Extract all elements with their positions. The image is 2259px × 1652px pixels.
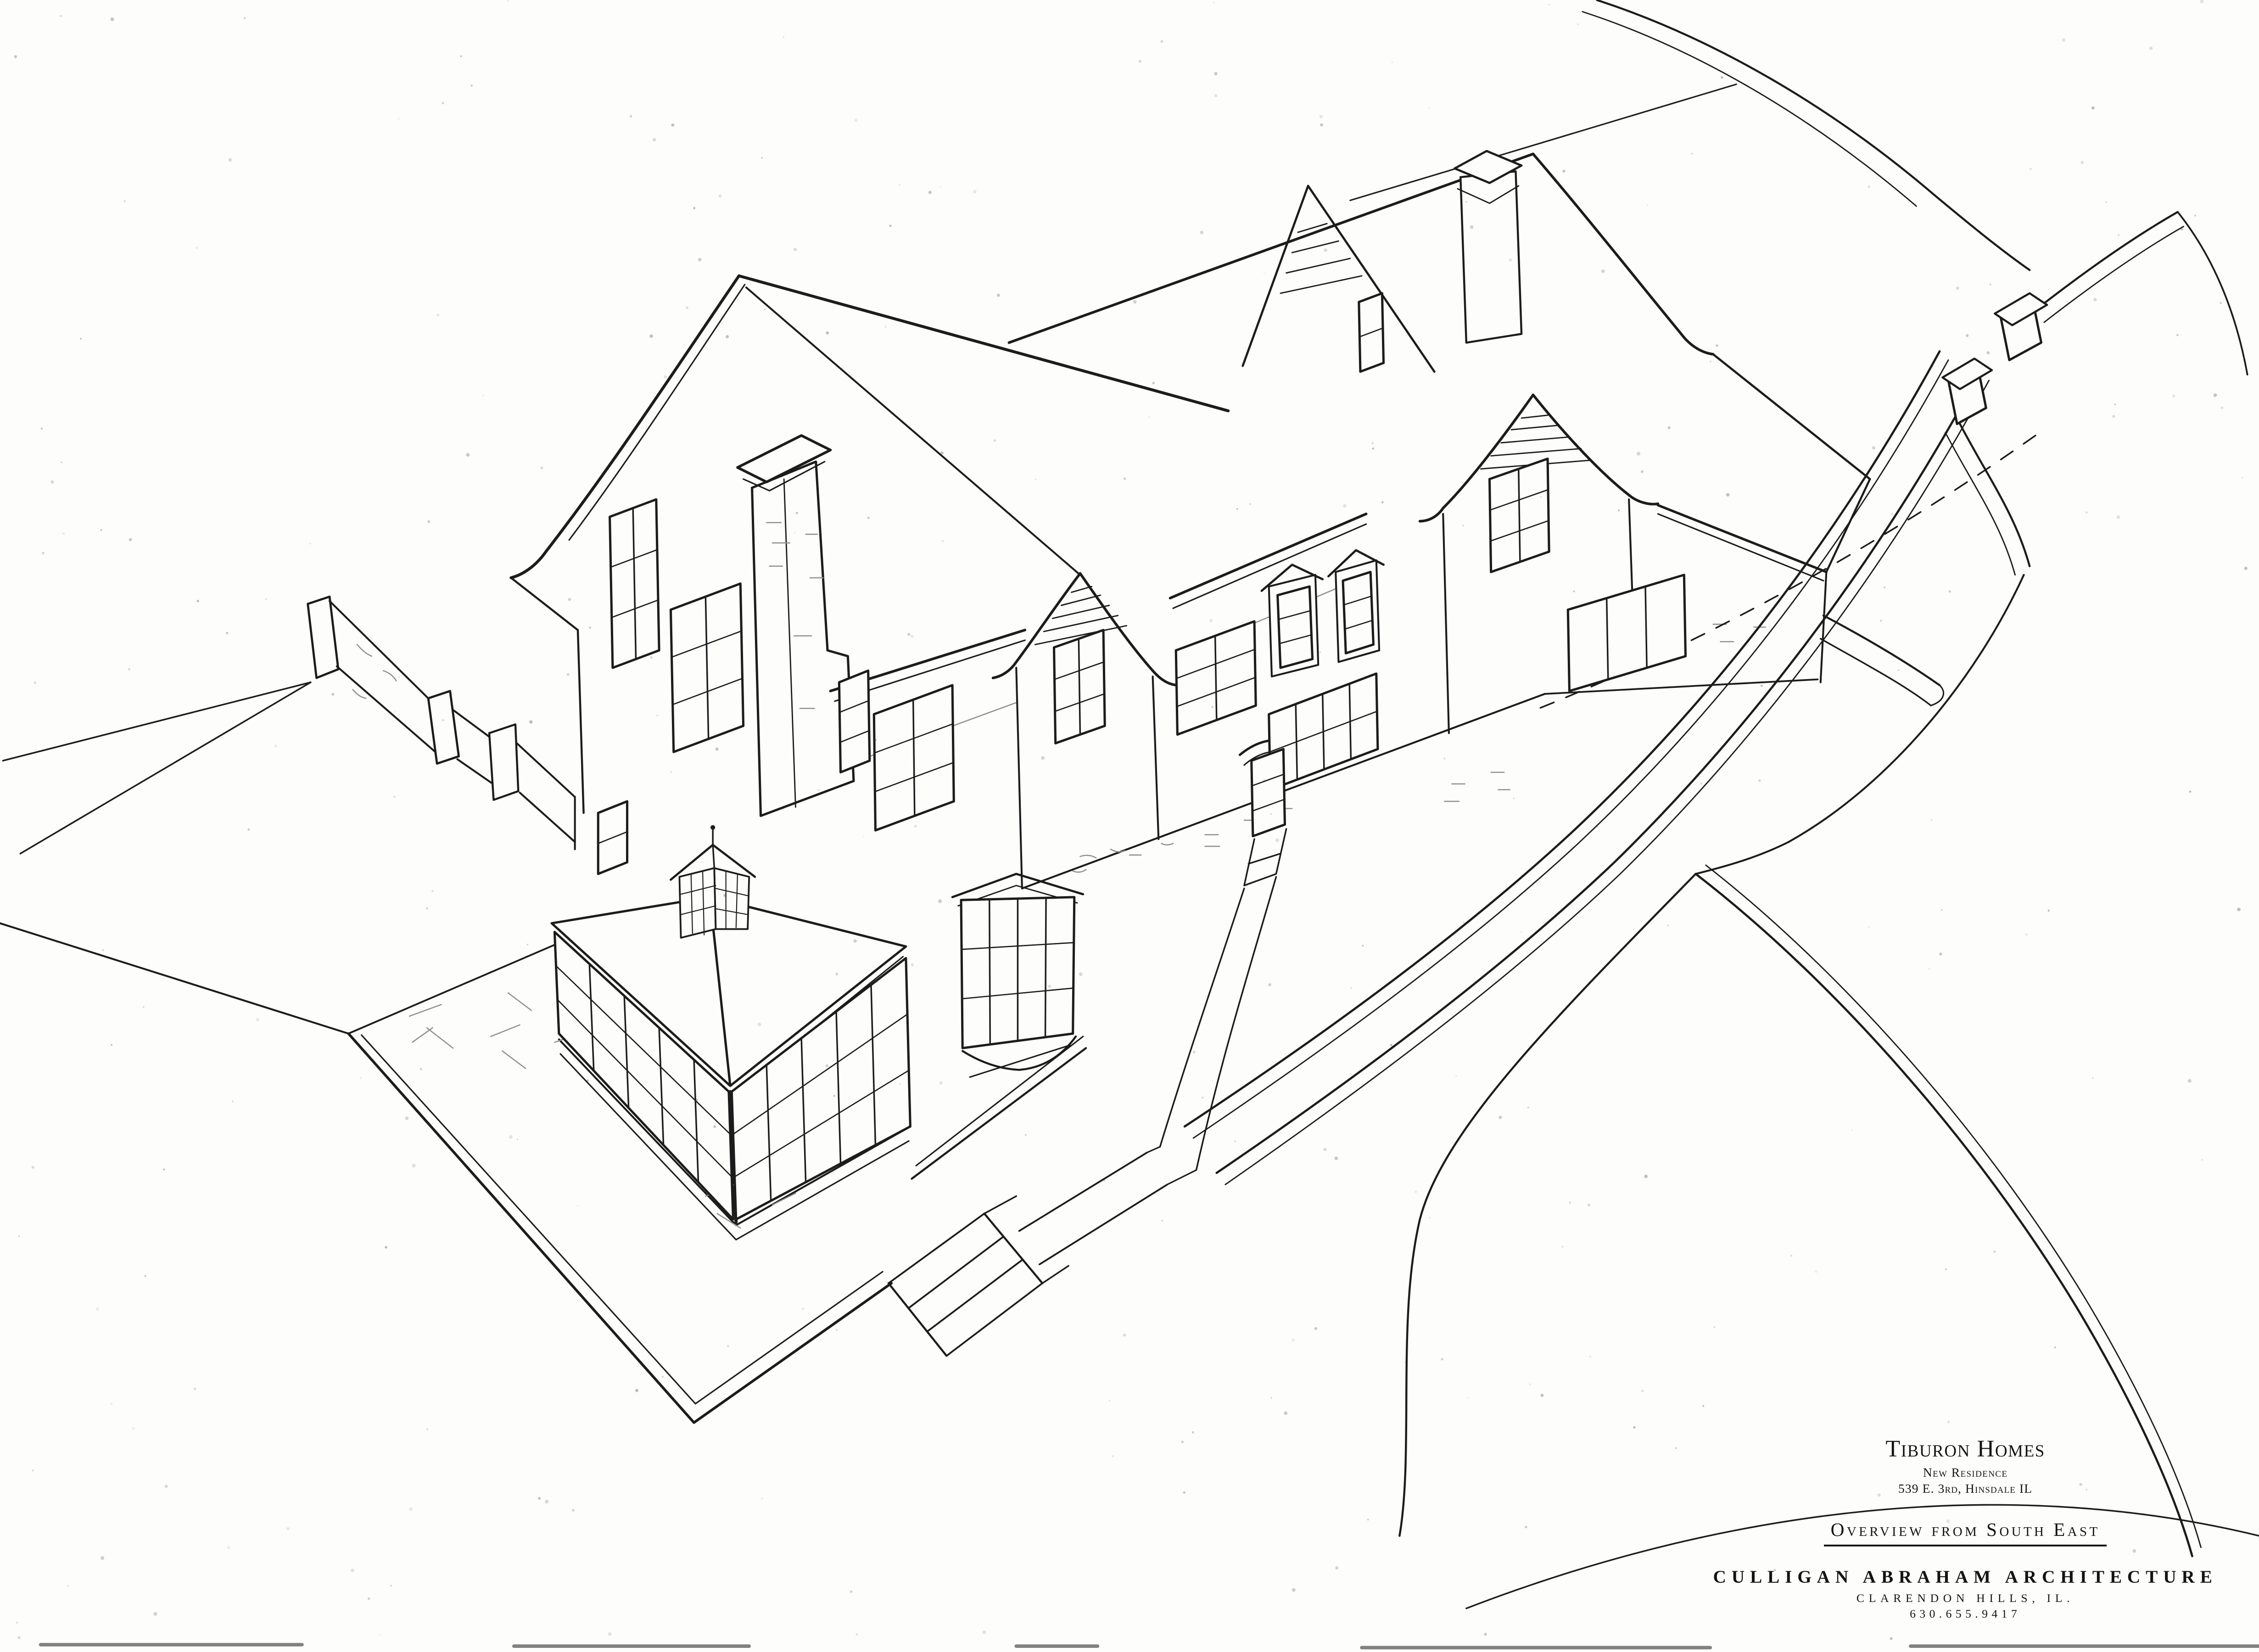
project-name: New Residence [1672,1465,2259,1480]
firm-phone: 630.655.9417 [1672,1607,2259,1621]
scan-edge [41,1645,2259,1647]
builder-name: Tiburon Homes [1672,1434,2259,1464]
steps [889,1196,1068,1356]
scan-speckle [14,0,2248,1640]
chimney [738,435,854,816]
garden-wall [308,597,575,849]
entry-gates [1582,0,2248,575]
perspective-sketch [0,0,2259,1652]
front-walk [1019,1147,1197,1264]
right-gable [1420,395,1658,733]
rear-roofs [1009,154,1870,572]
drawing-sheet: Tiburon Homes New Residence 539 E. 3rd, … [0,0,2259,1652]
firm-city: CLARENDON HILLS, IL. [1672,1591,2259,1606]
firm-name: CULLIGAN ABRAHAM ARCHITECTURE [1672,1566,2259,1588]
title-block: Tiburon Homes New Residence 539 E. 3rd, … [1672,1434,2259,1621]
project-address: 539 E. 3rd, Hinsdale IL [1672,1481,2259,1496]
rear-chimney [1455,151,1522,343]
view-title: Overview from South East [1824,1518,2107,1546]
